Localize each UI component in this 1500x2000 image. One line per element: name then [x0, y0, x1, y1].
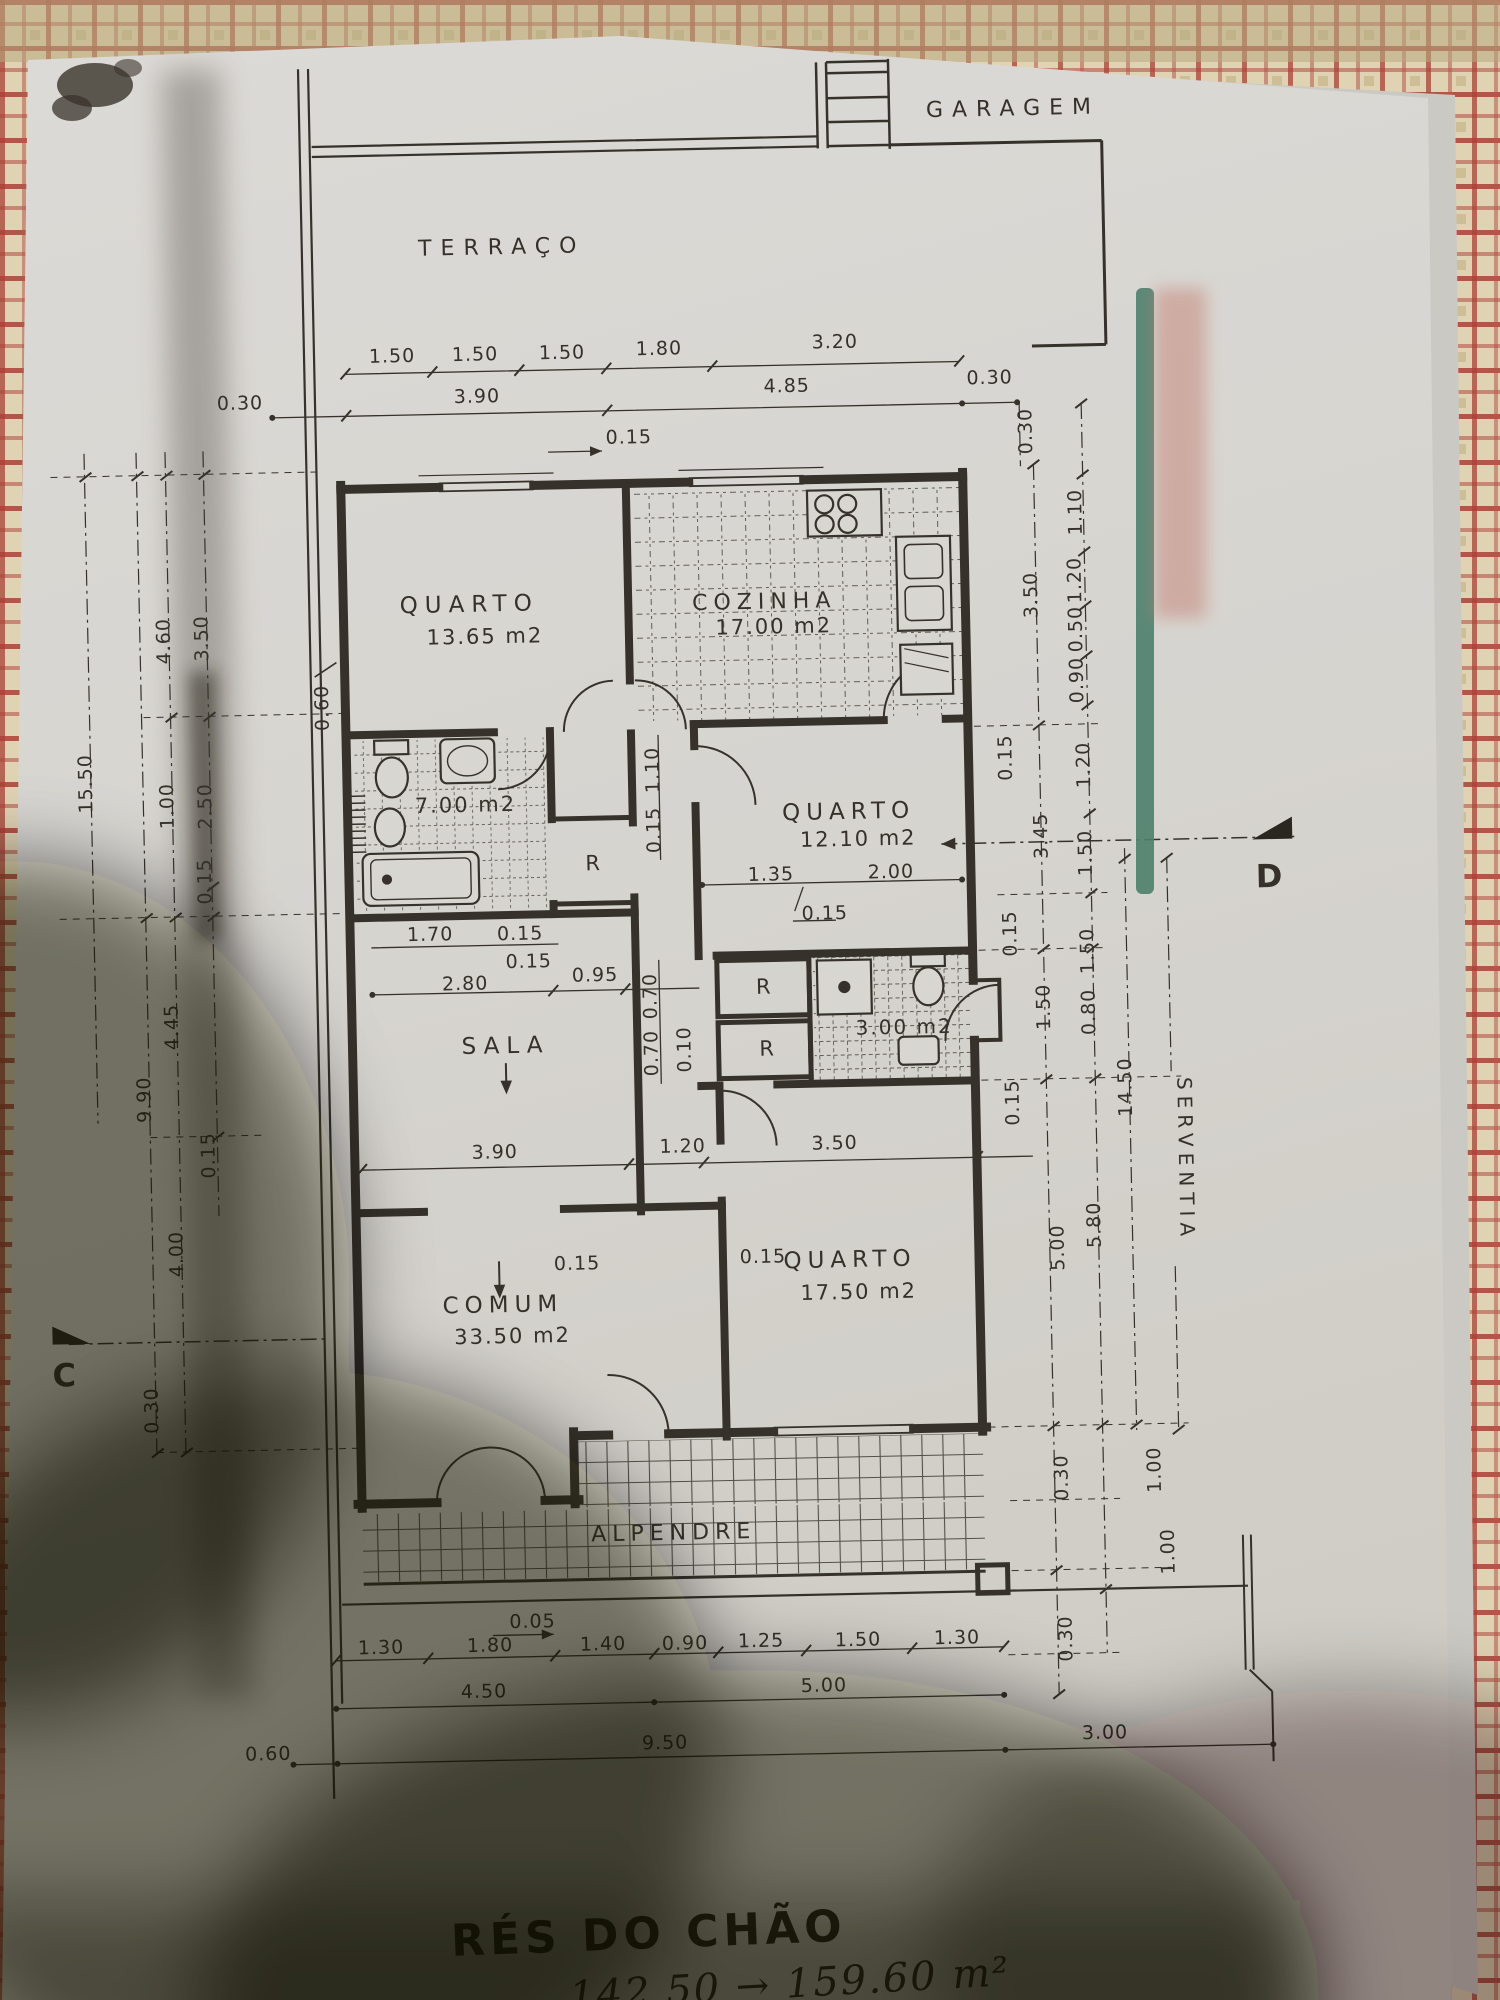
dimension-label: 3.90 — [471, 1141, 518, 1164]
dimension-label: 0.30 — [1014, 408, 1037, 455]
dimension-label: 3.50 — [811, 1132, 858, 1155]
dimension-label: 0.70 — [639, 973, 662, 1020]
dimension-label: 0.15 — [605, 426, 652, 449]
green-strip-object — [1136, 288, 1154, 894]
dimension-label: 0.15 — [801, 902, 848, 925]
common-label: COMUM — [442, 1291, 563, 1320]
dimension-label: 1.50 — [1074, 830, 1097, 877]
dimension-label: 1.50 — [539, 341, 586, 364]
dimension-label: 3.20 — [811, 331, 858, 354]
photo-of-floor-plan: C D GARAGEM TERRAÇO QUARTO 13.65 m2 COZI… — [0, 0, 1500, 2000]
wc-west-wall — [809, 954, 812, 1084]
dimension-label: 0.15 — [999, 910, 1022, 957]
dimension-label: 1.20 — [1063, 557, 1086, 604]
dimension-label: 1.30 — [934, 1626, 981, 1649]
toilet-tank — [374, 740, 408, 755]
bedroom1-label: QUARTO — [399, 590, 539, 619]
kitchen-area: 17.00 m2 — [715, 613, 832, 639]
dimension-label: 0.10 — [673, 1026, 696, 1073]
bidet-icon — [374, 808, 405, 847]
dimension-label: 4.60 — [152, 618, 175, 665]
dimension-label: 1.50 — [1076, 928, 1099, 975]
dimension-label: 1.70 — [407, 923, 454, 946]
dimension-label: 0.15 — [740, 1245, 787, 1268]
dimension-label: 2.50 — [194, 783, 217, 830]
closet3-label: R — [759, 1037, 774, 1061]
bathtub-drain — [383, 875, 391, 883]
common-area: 33.50 m2 — [454, 1323, 571, 1349]
dimension-label: 0.15 — [994, 734, 1017, 781]
kitchen-label: COZINHA — [692, 588, 837, 616]
kitchen-counter — [900, 644, 953, 695]
shower-drain — [839, 982, 849, 992]
bedroom1-area: 13.65 m2 — [426, 623, 543, 649]
dimension-label: 2.80 — [442, 972, 489, 995]
dimension-label: 1.50 — [835, 1628, 882, 1651]
dimension-label: 1.10 — [641, 747, 664, 794]
wc-toilet-icon — [913, 967, 944, 1006]
closet1-label: R — [585, 851, 600, 875]
dimension-label: 1.80 — [636, 337, 683, 360]
dimension-label: 14.50 — [1114, 1057, 1137, 1117]
dimension-label: 0.60 — [311, 685, 334, 732]
dimension-label: 1.00 — [1143, 1446, 1166, 1493]
wc-area: 3.00 m2 — [855, 1014, 953, 1040]
comum-arrow-shaft — [499, 1261, 500, 1285]
dimension-label: 1.50 — [452, 343, 499, 366]
dimension-label: 0.50 — [1064, 606, 1087, 653]
dimension-label: 0.70 — [640, 1030, 663, 1077]
dimension-label: 1.10 — [1064, 489, 1087, 536]
dimension-label: 15.50 — [74, 754, 97, 814]
dimension-label: 0.30 — [217, 392, 264, 415]
garage-label: GARAGEM — [926, 94, 1101, 123]
dimension-label: 0.95 — [572, 964, 619, 987]
dimension-label: 3.90 — [454, 385, 501, 408]
dimension-label: 0.15 — [497, 922, 544, 945]
terrace-label: TERRAÇO — [417, 233, 586, 262]
dimension-label: 1.20 — [659, 1135, 706, 1158]
toilet-icon — [375, 757, 408, 798]
living-label: SALA — [461, 1032, 549, 1060]
dimension-label: 0.15 — [1001, 1079, 1024, 1126]
wc-sink-icon — [898, 1036, 939, 1065]
bedroom2-label: QUARTO — [782, 797, 916, 826]
easement-label: SERVENTIA — [1172, 1077, 1199, 1243]
dimension-label: 1.50 — [1032, 983, 1055, 1030]
dimension-label: 0.15 — [505, 950, 552, 973]
pink-strip-object — [1154, 288, 1206, 618]
bedroom2-area: 12.10 m2 — [800, 825, 917, 851]
floor-plan-photo: C D GARAGEM TERRAÇO QUARTO 13.65 m2 COZI… — [0, 0, 1500, 2000]
sink-icon — [440, 738, 495, 783]
closet2-label: R — [756, 975, 771, 999]
wc-toilet-tank — [911, 954, 945, 967]
dimension-label: 3.50 — [1020, 572, 1043, 619]
dimension-label: 1.00 — [1157, 1528, 1180, 1575]
dimension-label: 5.00 — [1046, 1224, 1069, 1271]
bath-area: 7.00 m2 — [415, 792, 517, 818]
dimension-label: 0.80 — [1077, 989, 1100, 1036]
dimension-label: 2.00 — [868, 861, 915, 884]
bedroom3-label: QUARTO — [783, 1246, 917, 1275]
dimension-label: 0.15 — [643, 807, 666, 854]
dimension-label: 1.50 — [369, 345, 416, 368]
dimension-label: 1.00 — [156, 783, 179, 830]
dimension-label: 0.30 — [1050, 1454, 1073, 1501]
dimension-label: 1.20 — [1072, 742, 1095, 789]
dimension-label: 0.30 — [966, 366, 1013, 389]
porch-tile-hatch-upper — [575, 1433, 984, 1508]
dimension-label: 1.35 — [748, 863, 795, 886]
dimension-label: 3.45 — [1030, 812, 1053, 859]
dimension-label: 1.25 — [738, 1629, 785, 1652]
dimension-label: 0.15 — [193, 858, 216, 905]
dimension-label: 0.90 — [1065, 657, 1088, 704]
dimension-label: 3.50 — [190, 615, 213, 662]
dimension-label: 4.85 — [763, 375, 810, 398]
section-label-d: D — [1255, 857, 1282, 896]
dimension-label: 0.15 — [554, 1252, 601, 1275]
dimension-label: 0.30 — [1055, 1615, 1078, 1662]
bedroom3-area: 17.50 m2 — [800, 1279, 917, 1305]
dimension-label: 5.80 — [1083, 1201, 1106, 1248]
